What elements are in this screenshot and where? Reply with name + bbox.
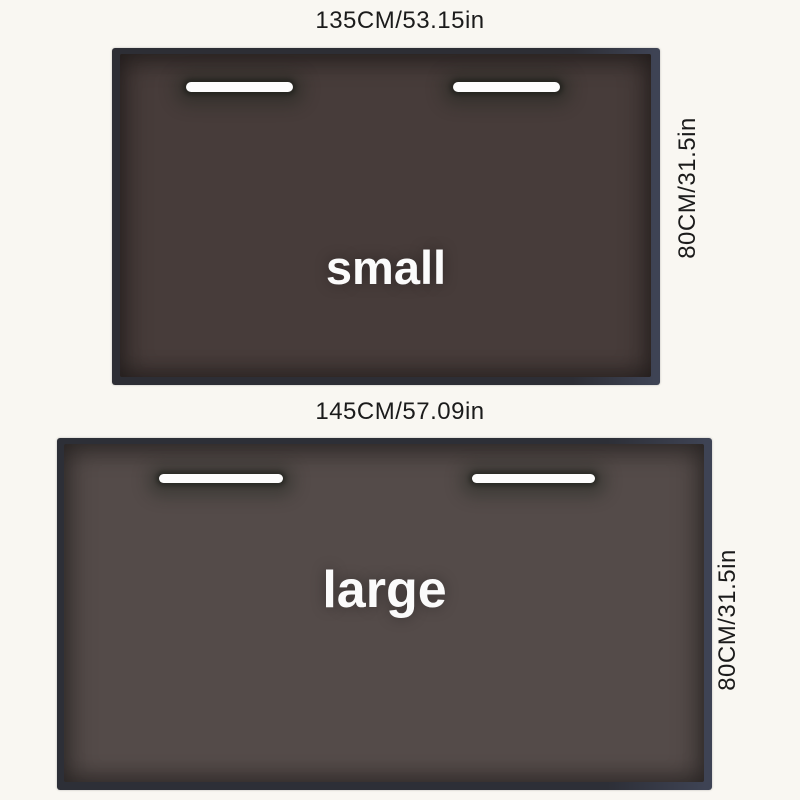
handle-slot-right [472,474,595,483]
handle-slot-left [159,474,283,483]
size-comparison-diagram: 135CM/53.15in small 80CM/31.5in 145CM/57… [0,0,800,800]
small-mat-size-label: small [112,240,660,295]
handle-slot-left [186,82,293,92]
small-mat-surface [120,54,651,377]
large-mat-size-label: large [57,560,712,620]
small-mat: small [112,48,660,385]
large-mat-height-label: 80CM/31.5in [714,549,742,691]
large-mat: large [57,438,712,790]
small-mat-height-label: 80CM/31.5in [674,117,702,259]
large-mat-width-label: 145CM/57.09in [0,398,800,426]
small-mat-width-label: 135CM/53.15in [0,7,800,35]
handle-slot-right [453,82,560,92]
